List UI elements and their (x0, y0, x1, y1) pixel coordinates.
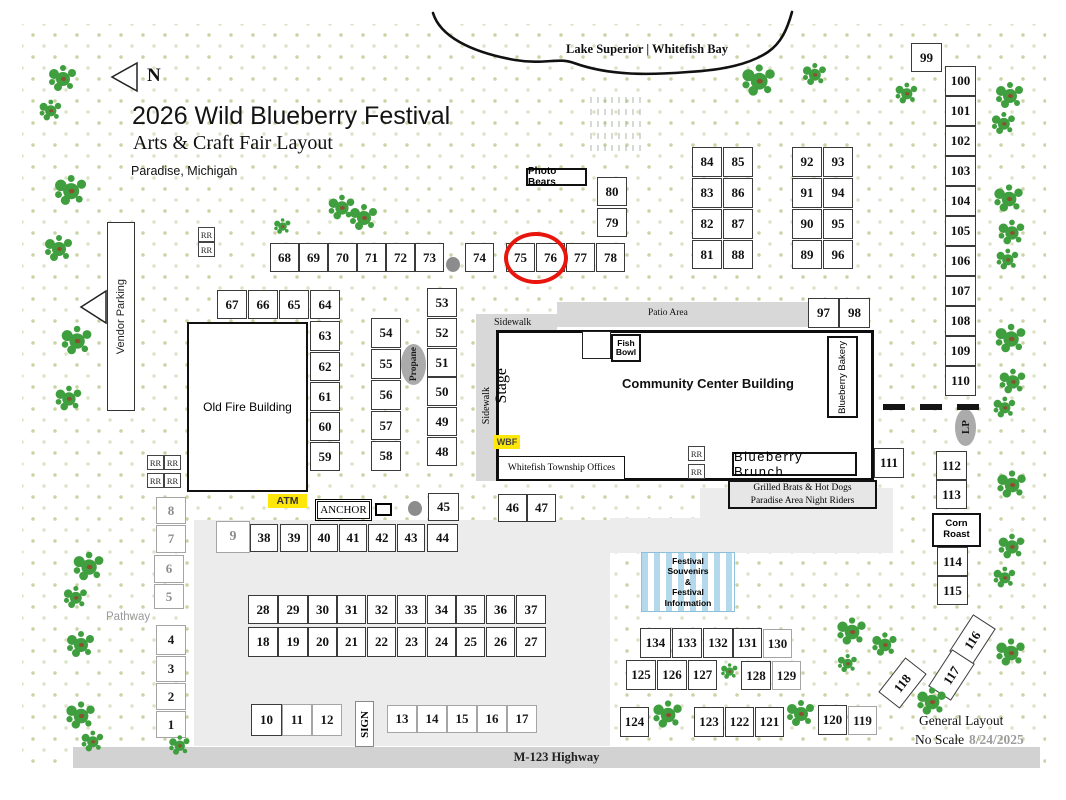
parking-arrow-icon (81, 291, 106, 323)
post-marker-1 (446, 257, 460, 272)
booth-15: 15 (447, 705, 477, 733)
dashed-line-segment (957, 404, 979, 410)
booth-62: 62 (310, 352, 340, 381)
booth-130: 130 (763, 629, 792, 658)
booth-29: 29 (278, 595, 308, 624)
booth-104: 104 (945, 186, 976, 216)
booth-50: 50 (427, 377, 457, 406)
booth-60: 60 (310, 412, 340, 441)
booth-82: 82 (692, 209, 722, 239)
booth-1: 1 (156, 711, 186, 738)
booth-123: 123 (694, 707, 724, 737)
booth-77: 77 (566, 243, 595, 272)
booth-119: 119 (848, 706, 877, 735)
booth-99: 99 (911, 43, 942, 72)
restroom-box: RR (688, 464, 705, 479)
no-scale-note: No Scale (915, 732, 964, 748)
booth-54: 54 (371, 318, 401, 348)
booth-26: 26 (486, 627, 515, 657)
booth-103: 103 (945, 156, 976, 186)
booth-88: 88 (723, 240, 753, 269)
tent-line-3: & (685, 577, 691, 587)
restroom-box: RR (164, 473, 181, 488)
booth-2: 2 (156, 683, 186, 710)
booth-58: 58 (371, 441, 401, 471)
booth-67: 67 (217, 290, 247, 319)
booth-31: 31 (337, 595, 366, 624)
booth-134: 134 (640, 628, 671, 658)
booth-37: 37 (516, 595, 546, 624)
vendor-parking: Vendor Parking (107, 222, 135, 411)
township-offices-label: Whitefish Township Offices (508, 463, 615, 473)
wbf-label: WBF (497, 437, 518, 447)
booth-107: 107 (945, 276, 976, 306)
highway-label-wrap: M-123 Highway (73, 747, 1040, 768)
booth-64: 64 (310, 290, 340, 319)
marsh-hatch (588, 95, 646, 157)
old-fire-building-label: Old Fire Building (203, 400, 292, 414)
restroom-box: RR (147, 455, 164, 470)
booth-7: 7 (156, 525, 186, 553)
booth-25: 25 (456, 627, 485, 657)
restroom-box: RR (688, 446, 705, 461)
booth-20: 20 (308, 627, 337, 657)
booth-4: 4 (156, 625, 186, 655)
booth-106: 106 (945, 246, 976, 276)
booth-16: 16 (477, 705, 507, 733)
wbf-marker: WBF (494, 435, 520, 449)
booth-66: 66 (248, 290, 278, 319)
booth-13: 13 (387, 705, 417, 733)
post-marker-2 (408, 501, 422, 516)
tent-line-2: Souvenirs (667, 566, 708, 576)
general-layout-note: General Layout (919, 713, 1003, 729)
booth-24: 24 (427, 627, 456, 657)
booth-5: 5 (154, 584, 184, 609)
tent-line-5: Information (665, 598, 712, 608)
booth-47: 47 (527, 494, 556, 522)
booth-27: 27 (516, 627, 546, 657)
booth-108: 108 (945, 306, 976, 336)
booth-116-label: 116 (961, 628, 985, 652)
old-fire-building: Old Fire Building (187, 322, 308, 492)
booth-9: 9 (216, 521, 250, 553)
booth-131: 131 (733, 628, 762, 658)
highway-label: M-123 Highway (514, 750, 600, 765)
restroom-box: RR (147, 473, 164, 488)
booth-39: 39 (280, 524, 308, 552)
booth-32: 32 (367, 595, 396, 624)
booth-91: 91 (792, 178, 822, 208)
booth-100: 100 (945, 66, 976, 96)
booth-21: 21 (337, 627, 366, 657)
utility-box (375, 503, 392, 516)
dashed-line-segment (920, 404, 942, 410)
booth-11: 11 (282, 704, 312, 736)
booth-129: 129 (772, 661, 801, 690)
sign-post: SIGN (355, 701, 374, 747)
atm-marker: ATM (268, 494, 307, 508)
booth-23: 23 (397, 627, 426, 657)
north-arrow-icon (112, 63, 137, 91)
souvenir-tent: Festival Souvenirs & Festival Informatio… (641, 552, 735, 612)
grilled-brats-line1: Grilled Brats & Hot Dogs (753, 482, 851, 494)
booth-80: 80 (597, 177, 627, 206)
booth-28: 28 (248, 595, 278, 624)
booth-124: 124 (620, 707, 649, 737)
booth-113: 113 (936, 480, 967, 509)
booth-110: 110 (945, 366, 976, 396)
restroom-box: RR (198, 227, 215, 242)
booth-71: 71 (357, 243, 386, 272)
township-offices: Whitefish Township Offices (498, 456, 625, 480)
stage-label: Stage (493, 368, 511, 404)
booth-22: 22 (367, 627, 396, 657)
booth-101: 101 (945, 96, 976, 126)
booth-59: 59 (310, 442, 340, 471)
booth-65: 65 (279, 290, 309, 319)
booth-19: 19 (278, 627, 308, 657)
booth-79: 79 (597, 208, 627, 237)
booth-8: 8 (156, 497, 186, 524)
sidewalk-top-label: Sidewalk (494, 317, 531, 328)
booth-46: 46 (498, 494, 527, 522)
booth-42: 42 (368, 524, 396, 552)
restroom-box: RR (164, 455, 181, 470)
booth-84: 84 (692, 147, 722, 177)
booth-48: 48 (427, 437, 457, 466)
propane-tank: Propane (401, 344, 426, 385)
corn-roast-line2: Roast (943, 530, 969, 541)
booth-53: 53 (427, 288, 457, 317)
booth-85: 85 (723, 147, 753, 177)
fish-bowl: Fish Bowl (611, 334, 641, 362)
booth-45: 45 (428, 493, 459, 521)
booth-121: 121 (755, 707, 784, 737)
lake-label: Lake Superior | Whitefish Bay (566, 42, 728, 57)
booth-56: 56 (371, 380, 401, 410)
booth-44: 44 (427, 524, 458, 552)
booth-89: 89 (792, 240, 822, 269)
booth-117-label: 117 (940, 663, 964, 687)
blueberry-brunch-label: Blueberry Brunch (734, 449, 855, 479)
interior-booth-unlabeled (582, 331, 611, 359)
booth-115: 115 (937, 576, 968, 605)
booth-74: 74 (465, 243, 494, 272)
fish-bowl-label-2: Bowl (616, 348, 636, 357)
anchor-stand: ANCHOR (317, 501, 370, 519)
booth-49: 49 (427, 407, 457, 436)
stage-label-wrap: Stage (492, 352, 512, 420)
tent-line-1: Festival (672, 556, 704, 566)
booth-105: 105 (945, 216, 976, 246)
booth-6: 6 (154, 555, 184, 583)
booth-17: 17 (507, 705, 537, 733)
booth-34: 34 (427, 595, 456, 624)
booth-128: 128 (741, 661, 771, 690)
booth-112: 112 (936, 451, 967, 480)
corn-roast-stand: Corn Roast (932, 513, 981, 547)
grilled-brats-stand: Grilled Brats & Hot Dogs Paradise Area N… (728, 480, 877, 509)
blueberry-brunch: Blueberry Brunch (732, 452, 857, 476)
community-center-label: Community Center Building (622, 376, 794, 391)
booth-87: 87 (723, 209, 753, 239)
sidewalk-side-label: Sidewalk (481, 387, 492, 424)
booth-18: 18 (248, 627, 278, 657)
booth-36: 36 (486, 595, 515, 624)
booth-51: 51 (427, 348, 457, 377)
booth-43: 43 (397, 524, 425, 552)
tent-line-4: Festival (672, 587, 704, 597)
booth-38: 38 (250, 524, 278, 552)
booth-127: 127 (688, 660, 717, 690)
booth-122: 122 (725, 707, 754, 737)
booth-111: 111 (874, 448, 904, 478)
page-location: Paradise, Michigan (131, 164, 237, 178)
layout-date: 8/24/2025 (969, 732, 1024, 748)
grilled-brats-line2: Paradise Area Night Riders (751, 495, 855, 507)
page-subtitle: Arts & Craft Fair Layout (133, 132, 333, 155)
lp-tank: LP (955, 409, 976, 446)
booth-69: 69 (299, 243, 328, 272)
booth-92: 92 (792, 147, 822, 177)
booth-90: 90 (792, 209, 822, 239)
festival-map: N 2026 Wild Blueberry Festival Arts & Cr… (0, 0, 1066, 800)
booth-102: 102 (945, 126, 976, 156)
pathway-label: Pathway (106, 611, 150, 623)
booth-133: 133 (672, 628, 702, 658)
booth-35: 35 (456, 595, 485, 624)
booth-55: 55 (371, 349, 401, 379)
booth-33: 33 (397, 595, 426, 624)
booth-94: 94 (823, 178, 853, 208)
booth-118-label: 118 (890, 671, 914, 696)
booth-70: 70 (328, 243, 357, 272)
booth-114: 114 (937, 547, 968, 576)
booth-10: 10 (251, 704, 282, 736)
dashed-line-segment (883, 404, 905, 410)
booth-93: 93 (823, 147, 853, 177)
booth-72: 72 (386, 243, 415, 272)
north-label: N (147, 65, 161, 87)
booth-125: 125 (626, 660, 656, 690)
vendor-parking-label: Vendor Parking (115, 279, 127, 354)
booth-98: 98 (839, 298, 870, 328)
page-title: 2026 Wild Blueberry Festival (132, 102, 450, 131)
booth-132: 132 (703, 628, 733, 658)
highlight-circle (504, 232, 568, 284)
booth-61: 61 (310, 382, 340, 411)
booth-63: 63 (310, 321, 340, 351)
booth-97: 97 (808, 298, 839, 328)
booth-120: 120 (818, 705, 847, 735)
sign-label: SIGN (359, 711, 371, 738)
booth-40: 40 (310, 524, 338, 552)
booth-78: 78 (596, 243, 625, 272)
booth-109: 109 (945, 336, 976, 366)
photo-bears-stand: Photo Bears (526, 168, 587, 186)
blueberry-bakery-label: Blueberry Bakery (837, 341, 848, 414)
blueberry-bakery: Blueberry Bakery (827, 336, 858, 418)
photo-bears-label: Photo Bears (528, 166, 585, 188)
booth-126: 126 (657, 660, 687, 690)
booth-57: 57 (371, 411, 401, 440)
anchor-label: ANCHOR (320, 504, 366, 516)
booth-83: 83 (692, 178, 722, 208)
booth-68: 68 (270, 243, 299, 272)
booth-86: 86 (723, 178, 753, 208)
booth-81: 81 (692, 240, 722, 269)
booth-3: 3 (156, 656, 186, 682)
booth-52: 52 (427, 318, 457, 347)
patio-label: Patio Area (648, 308, 688, 318)
booth-95: 95 (823, 209, 853, 239)
restroom-box: RR (198, 242, 215, 257)
booth-41: 41 (339, 524, 367, 552)
atm-label: ATM (277, 495, 299, 507)
booth-14: 14 (417, 705, 447, 733)
booth-12: 12 (312, 704, 342, 736)
booth-73: 73 (415, 243, 444, 272)
propane-label: Propane (409, 347, 419, 381)
booth-96: 96 (823, 240, 853, 269)
booth-30: 30 (308, 595, 337, 624)
lp-label: LP (960, 420, 972, 434)
